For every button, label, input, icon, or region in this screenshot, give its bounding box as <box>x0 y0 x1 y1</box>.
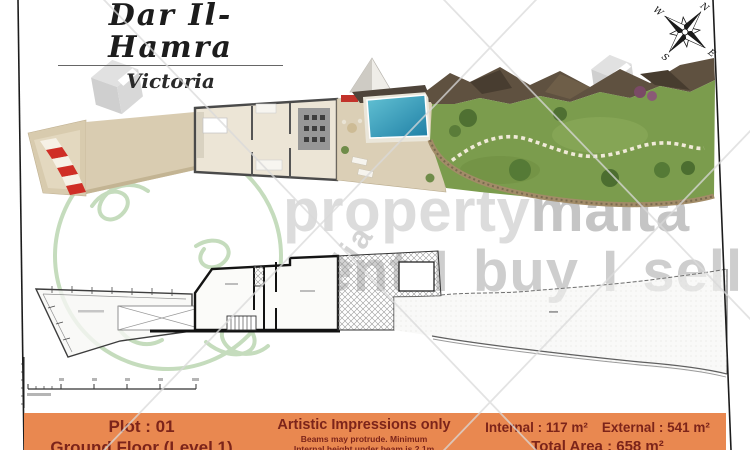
plan-pool-room <box>399 262 434 291</box>
floor-plan-sheet: propertymalta rent I buy I sell dhalia <box>0 0 750 450</box>
footer-plot-section: Plot : 01 Ground Floor (Level 1) <box>24 413 259 450</box>
footer-areas-section: Internal : 117 m²External : 541 m² Total… <box>469 413 726 450</box>
patio-table <box>347 123 357 133</box>
internal-area: Internal : 117 m² <box>485 420 588 435</box>
compass-s-label: S <box>659 52 670 64</box>
page-subtitle: Victoria <box>58 69 283 93</box>
bed <box>203 118 227 133</box>
sofa <box>256 160 282 170</box>
disclaimer-title: Artistic Impressions only <box>259 417 469 433</box>
plan-2d-drawing <box>21 251 727 408</box>
external-area: External : 541 m² <box>602 420 710 435</box>
scale-bar-horizontal <box>28 384 196 389</box>
swimming-pool <box>367 95 428 138</box>
floor-level: Ground Floor (Level 1) <box>24 438 259 450</box>
compass-w-label: W <box>651 5 665 19</box>
disclaimer-line2: Internal height under beam is 2.1m <box>259 444 469 450</box>
disclaimer-line1: Beams may protrude. Minimum <box>259 434 469 444</box>
plot-number: Plot : 01 <box>24 417 259 437</box>
area-values: Internal : 117 m²External : 541 m² <box>469 420 726 435</box>
total-area: Total Area : 658 m² <box>469 438 726 450</box>
sofa <box>256 104 276 113</box>
compass-e-label: E <box>705 47 717 60</box>
scale-bar-figures <box>27 378 199 396</box>
dining-set <box>304 115 325 142</box>
page-title: Dar Il-Hamra <box>58 0 283 66</box>
sheet-border-left <box>18 0 24 450</box>
footer-disclaimer-section: Artistic Impressions only Beams may prot… <box>259 413 469 450</box>
terrace-plant <box>341 146 349 154</box>
compass-n-label: N <box>697 1 711 15</box>
plan-shaft <box>254 266 264 286</box>
footer-info-bar: Plot : 01 Ground Floor (Level 1) Artisti… <box>24 413 726 450</box>
compass-rose-icon: N E S W <box>648 0 732 76</box>
plan-staircase <box>227 316 256 330</box>
title-block: Dar Il-Hamra Victoria <box>58 0 283 93</box>
plan-building <box>195 256 338 330</box>
